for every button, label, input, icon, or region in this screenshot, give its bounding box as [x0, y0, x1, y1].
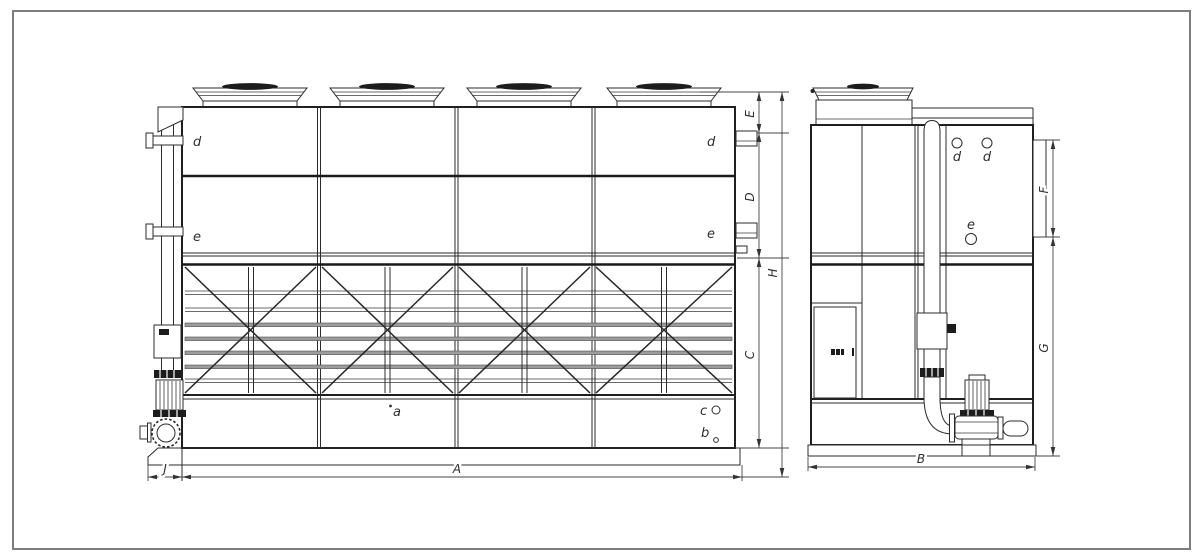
fan-cowl: [816, 100, 912, 125]
mark-d2-circle: [982, 138, 992, 148]
label-d-left: d: [193, 135, 202, 150]
fan-blade: [496, 83, 552, 90]
pump-volute: [152, 419, 180, 447]
door-hinge-mark: [852, 348, 854, 356]
discharge-cap: [1003, 421, 1028, 436]
discharge-flange: [998, 417, 1003, 439]
bolt-mark: [811, 89, 815, 93]
fan-unit: [330, 83, 444, 107]
pump-volute: [955, 416, 998, 439]
flange: [960, 410, 994, 416]
dim-E: E: [743, 110, 757, 118]
suction-flange: [950, 414, 955, 442]
dim-D: D: [743, 192, 757, 201]
stub-small: [736, 246, 747, 253]
stub-d: [736, 131, 757, 146]
fan-blade: [359, 83, 415, 90]
front-fans: [193, 83, 721, 107]
door-tiny-label: [836, 349, 840, 355]
louver-band: [185, 351, 732, 355]
dim-B: B: [917, 452, 925, 466]
mark-a-dot: [389, 405, 392, 408]
front-base: J A: [148, 448, 742, 481]
dim-G: G: [1037, 343, 1051, 352]
fan-unit: [607, 83, 721, 107]
mark-c-circle: [712, 406, 720, 414]
front-view: J A d e d e a c b E D C H: [140, 83, 789, 481]
mark-d1-circle: [952, 138, 962, 148]
louver-band: [185, 365, 732, 369]
side-view: d d e: [808, 84, 1060, 471]
pipe-bracket: [152, 227, 183, 236]
fan-blade: [222, 83, 278, 90]
dim-J: J: [161, 462, 167, 476]
motor-cap: [969, 375, 985, 380]
dim-C: C: [743, 350, 757, 359]
label-e-left: e: [193, 230, 201, 245]
side-fan: [811, 84, 914, 125]
fan-blade: [847, 84, 879, 90]
access-door: [814, 307, 856, 398]
label-e-right: e: [707, 227, 715, 242]
dim-H: H: [766, 268, 780, 277]
louver-band: [185, 323, 732, 327]
door-tiny-label: [841, 349, 844, 355]
label-b: b: [701, 426, 709, 441]
stub-e: [736, 223, 757, 238]
dim-A: A: [452, 462, 461, 476]
door-tiny-label: [831, 349, 835, 355]
label-a: a: [393, 405, 401, 420]
label-d1: d: [953, 150, 962, 165]
riser-elbow: [158, 107, 183, 132]
drawing-sheet: J A d e d e a c b E D C H: [0, 0, 1200, 559]
valve-box: [917, 313, 947, 349]
mark-b-circle: [714, 438, 719, 443]
dim-F: F: [1037, 185, 1051, 193]
louver-band: [185, 337, 732, 341]
fan-unit: [193, 83, 307, 107]
connection-stubs: [736, 131, 757, 253]
label-d2: d: [983, 150, 992, 165]
label-c: c: [700, 404, 707, 419]
front-riser-pump: [140, 107, 186, 447]
fan-blade: [636, 83, 692, 90]
label-e: e: [967, 218, 975, 233]
label-d-right: d: [707, 135, 716, 150]
fan-unit: [467, 83, 581, 107]
pipe-bracket: [152, 136, 183, 145]
mark-e-circle: [966, 234, 977, 245]
